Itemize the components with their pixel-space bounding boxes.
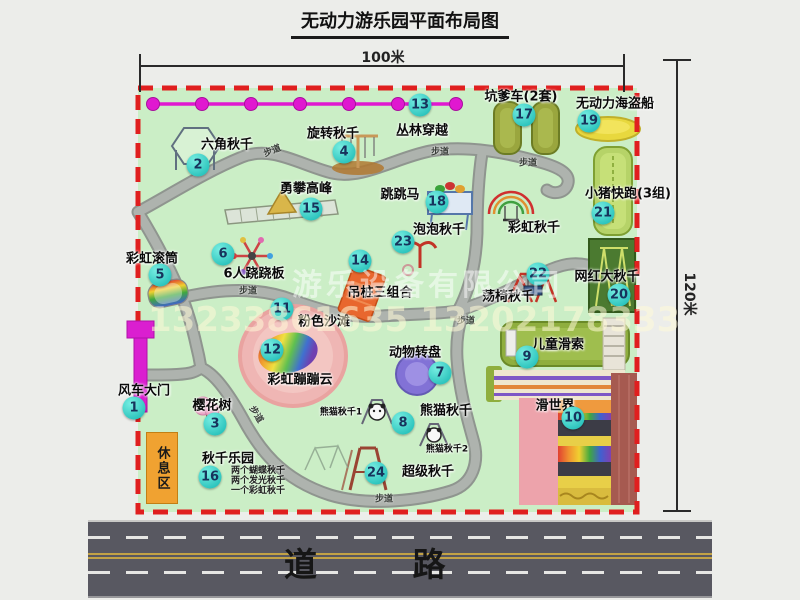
swing-note-line: 两个蝴蝶秋千 [231, 466, 285, 476]
pink-beach-cloud-icon [240, 306, 346, 406]
swing-note-line: 两个发光秋千 [231, 476, 285, 486]
big-swing-icon [589, 239, 635, 312]
swing-note-line: 一个彩虹秋千 [231, 486, 285, 496]
dimension-width-label: 100米 [361, 47, 404, 67]
animal-turntable-icon [396, 353, 438, 395]
pirate-ship-icon [576, 117, 640, 141]
road-label: 道 路 [284, 538, 488, 586]
piggy-run-icon [594, 147, 632, 235]
page-title: 无动力游乐园平面布局图 [291, 7, 509, 39]
kids-zipline-icon [501, 318, 629, 370]
road: 道 路 [88, 520, 712, 598]
swing-paradise-notes: 两个蝴蝶秋千两个发光秋千一个彩虹秋千 [231, 466, 285, 496]
rest-area: 休息区 [146, 432, 178, 504]
park-plan-screenshot: 无动力游乐园平面布局图 100米 120米 休息区 两个蝴蝶秋千两个发光秋千一个… [0, 0, 800, 600]
dimension-height-label: 120米 [680, 272, 700, 315]
